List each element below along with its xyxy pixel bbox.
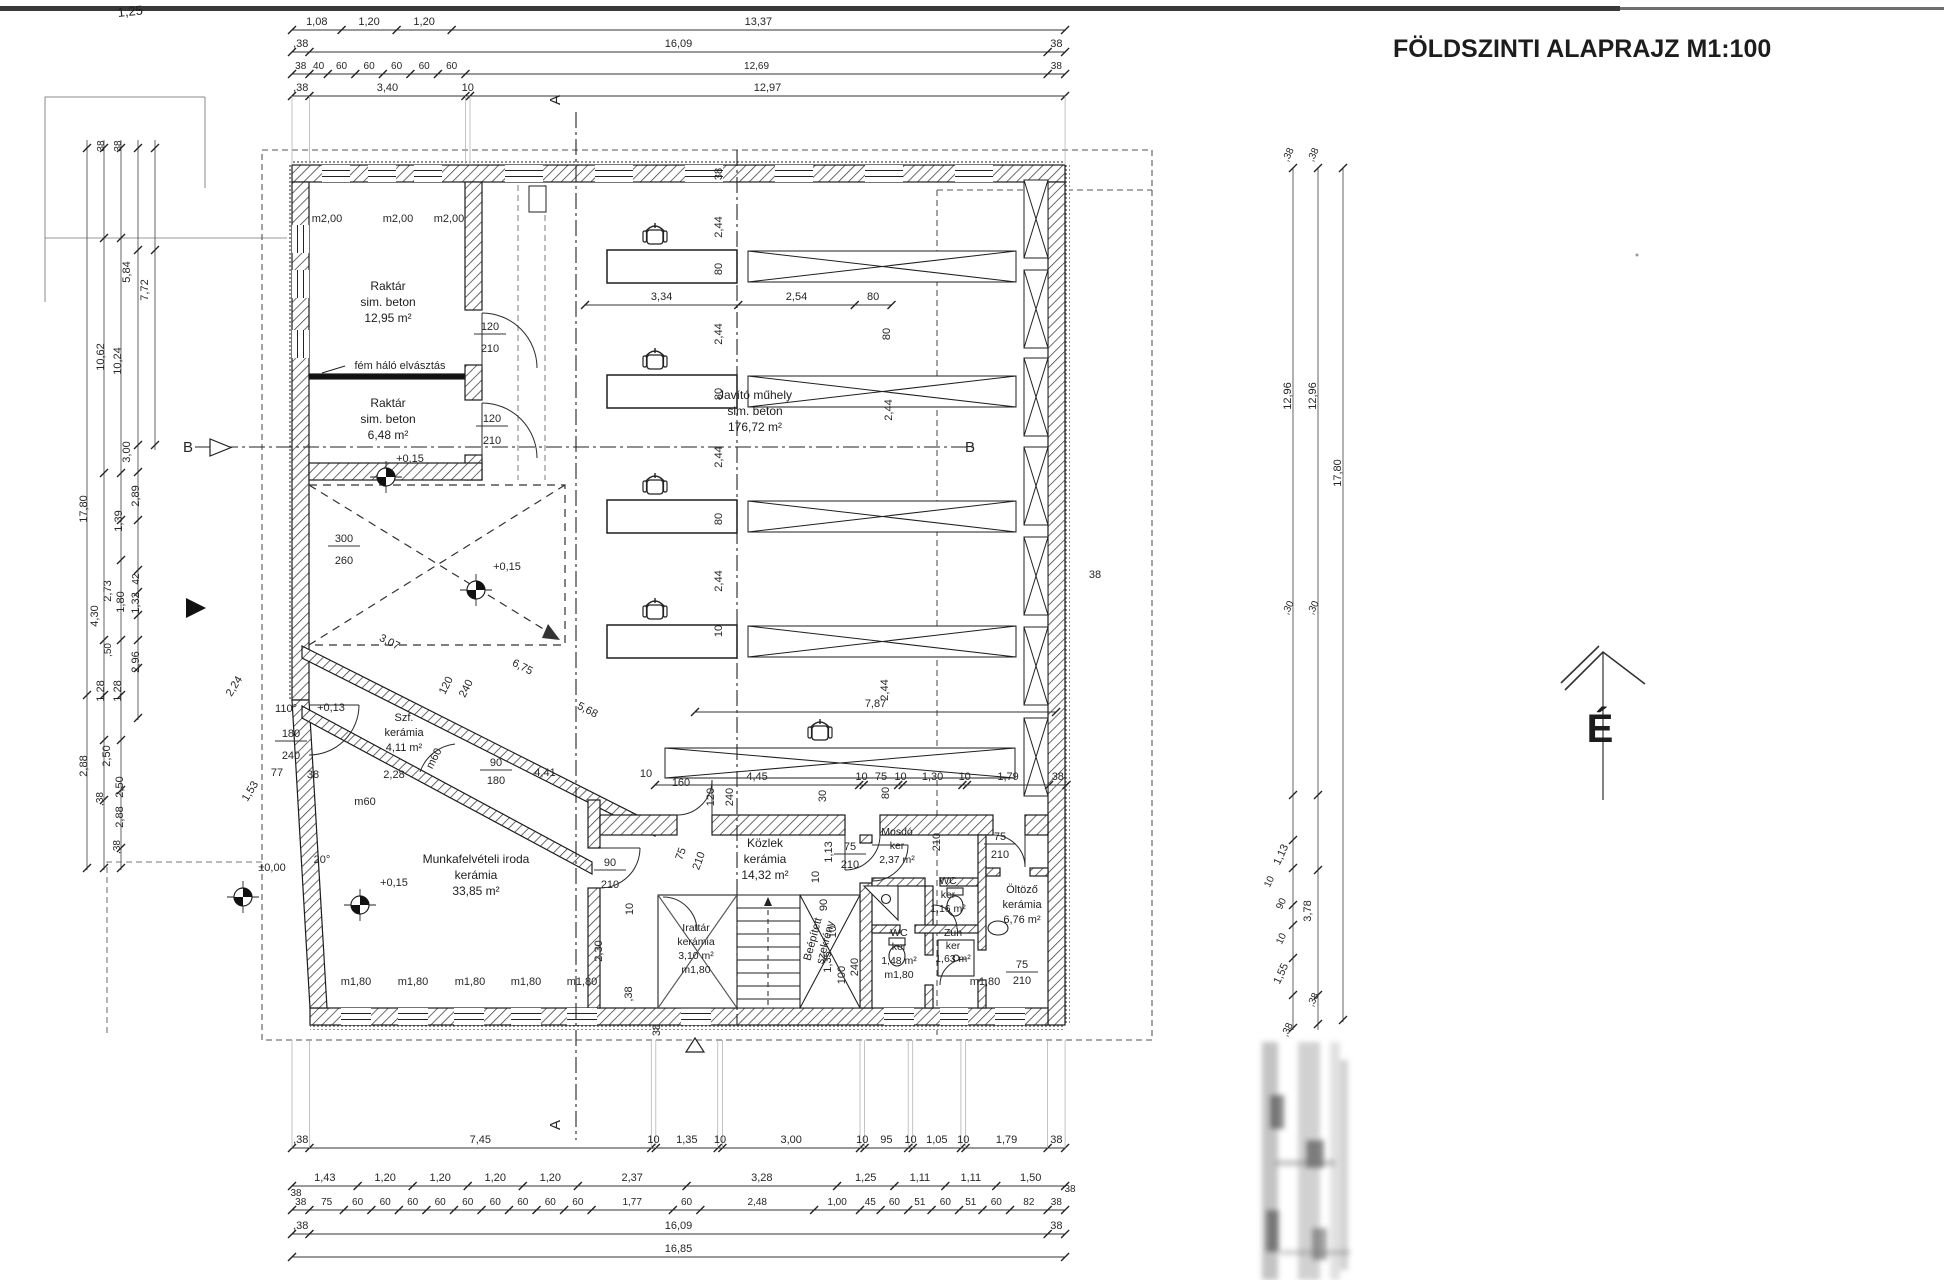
- annotation-label: ,38: [1306, 146, 1322, 164]
- room-label-line: WC: [939, 875, 957, 887]
- annotation-label: 2,44: [713, 323, 725, 344]
- annotation-label: 4,41: [534, 767, 555, 779]
- annotation-label: 1,28: [112, 680, 124, 701]
- dim-label: 1,08: [306, 16, 327, 28]
- annotation-label: ±0,00: [258, 862, 285, 874]
- annotation-label: ,38: [95, 792, 106, 806]
- dim-label: 1,77: [622, 1197, 642, 1208]
- annotation-label: 10: [624, 903, 636, 915]
- room-label-line: kerámia: [1002, 899, 1042, 911]
- annotation-label: 17,80: [78, 495, 90, 523]
- dim-label: 60: [545, 1197, 557, 1208]
- annotation-label: fém háló elvásztás: [354, 360, 446, 372]
- dim-label: 1,20: [540, 1172, 561, 1184]
- dim-label: ,38: [293, 38, 308, 50]
- roof-drain: [529, 186, 546, 212]
- annotation-label: B: [183, 439, 193, 456]
- dim-label: 1,20: [413, 16, 434, 28]
- annotation-label: 90: [604, 857, 616, 869]
- dim-label: 60: [391, 61, 403, 72]
- room-label-line: 1,63 m²: [935, 953, 971, 965]
- annotation-label: m2,00: [383, 213, 414, 225]
- dim-label: 1,25: [855, 1172, 876, 1184]
- dim-label: 1,11: [910, 1172, 931, 1184]
- annotation-label: 38: [96, 140, 107, 152]
- dim-label: 10: [894, 771, 906, 783]
- annotation-label: 1,55: [1271, 961, 1291, 985]
- annotation-label: +0,15: [380, 877, 408, 889]
- leader-line: [322, 366, 345, 373]
- annotation-label: 210: [1013, 975, 1031, 987]
- annotation-label: +0,15: [396, 453, 424, 465]
- dim-label: 10: [959, 771, 971, 783]
- dim-label: 16,85: [665, 1243, 693, 1255]
- dim-label: 60: [681, 1197, 693, 1208]
- dim-label: 38: [1052, 771, 1064, 783]
- room-label-line: Javító műhely: [718, 388, 792, 402]
- annotation-label: 3,07: [377, 632, 402, 652]
- dim-label: 38: [1051, 61, 1063, 72]
- annotation-label: 80: [713, 263, 725, 275]
- annotation-label: A: [547, 95, 564, 105]
- room-label-munkafelveteli-iroda: Munkafelvételi irodakerámia33,85 m²: [423, 852, 530, 898]
- dim-label: 60: [364, 61, 376, 72]
- annotation-label: ,38: [623, 986, 635, 1001]
- annotation-label: m2,00: [312, 213, 343, 225]
- annotation-label: 120: [437, 675, 456, 697]
- annotation-label: m1,80: [511, 976, 542, 988]
- annotation-label: 77: [271, 767, 283, 779]
- room-label-line: m1,80: [884, 969, 913, 981]
- dim-label: 3,34: [651, 291, 672, 303]
- dim-label: 60: [991, 1197, 1003, 1208]
- floor-plan-drawing: É FÖLDSZINTI ALAPRAJZ M1:100 1,25 1,081,…: [0, 0, 1944, 1280]
- annotation-label: 75: [1016, 959, 1028, 971]
- dim-label: ,38: [293, 82, 308, 94]
- dim-label: 10: [856, 1134, 868, 1146]
- room-label-line: Szf.: [395, 712, 414, 724]
- scan-top-edge: [0, 6, 1944, 11]
- handwritten-mark: 1,25: [117, 2, 144, 20]
- dim-label: 10: [647, 1134, 659, 1146]
- dim-label: 60: [380, 1197, 392, 1208]
- annotation-label: 7,72: [139, 279, 151, 300]
- annotation-label: 2,50: [101, 745, 113, 766]
- dim-label: 38: [1051, 1197, 1063, 1208]
- dim-label: 51: [914, 1197, 926, 1208]
- annotation-label: 1,13: [1271, 842, 1291, 866]
- annotation-label: 90: [818, 899, 830, 911]
- dim-label: 1,20: [485, 1172, 506, 1184]
- dim-label: 60: [490, 1197, 502, 1208]
- dim-label: 1,20: [358, 16, 379, 28]
- annotation-label: 90: [1274, 896, 1289, 911]
- annotation-label: ,30: [1306, 599, 1322, 617]
- room-label-line: m1,80: [681, 964, 710, 976]
- room-label-mosdo: Mosdóker2,37 m²: [879, 826, 915, 866]
- annotation-label: 260: [335, 555, 353, 567]
- room-label-line: 6,48 m²: [368, 428, 409, 442]
- room-label-line: ker: [946, 940, 961, 952]
- dim-label: 10: [855, 771, 867, 783]
- annotation-label: B: [965, 439, 975, 456]
- annotation-label: 110°: [275, 703, 297, 715]
- annotation-label: 1,39: [113, 510, 125, 531]
- annotation-label: 30: [817, 790, 829, 802]
- room-label-line: 3,10 m²: [678, 950, 714, 962]
- room-label-line: ker: [890, 840, 905, 852]
- room-label-kozlekedo: Közlekkerámia14,32 m²: [741, 836, 788, 882]
- annotation-label: 38: [651, 1024, 663, 1036]
- dim-label: 3,40: [377, 82, 398, 94]
- scan-smudge: [1262, 1042, 1350, 1280]
- annotation-label: 1,13: [823, 841, 835, 862]
- dim-label: 75: [875, 771, 887, 783]
- dim-label: 38: [1050, 1220, 1062, 1232]
- annotation-label: 10: [810, 871, 822, 883]
- annotation-label: 2,50: [114, 776, 126, 797]
- dim-label: 60: [462, 1197, 474, 1208]
- annotation-label: 100: [836, 966, 848, 984]
- room-label-oltozo: Öltözőkerámia6,76 m²: [1002, 884, 1042, 926]
- scanned-floorplan-page: É FÖLDSZINTI ALAPRAJZ M1:100 1,25 1,081,…: [0, 0, 1944, 1280]
- stairs: [737, 895, 800, 1008]
- entrance-arrow: [186, 598, 206, 618]
- annotation-label: 3,78: [1302, 900, 1314, 921]
- dim-label: 82: [1023, 1197, 1035, 1208]
- dim-label: 16,09: [665, 38, 693, 50]
- annotation-label: m1,80: [341, 976, 372, 988]
- dim-label: 3,28: [751, 1172, 772, 1184]
- annotation-label: 210: [690, 850, 708, 871]
- annotation-label: m1,80: [455, 976, 486, 988]
- annotation-label: ,38: [1281, 146, 1297, 164]
- dim-label: 80: [867, 291, 879, 303]
- dim-label: 3,00: [780, 1134, 801, 1146]
- dim-label: 1,20: [429, 1172, 450, 1184]
- room-label-line: kerámia: [455, 868, 498, 882]
- dim-label: 1,11: [960, 1172, 981, 1184]
- scan-speck: [1636, 254, 1639, 257]
- annotation-label: 210: [601, 879, 619, 891]
- annotation-label: ,30: [1281, 599, 1297, 617]
- page-leader-lines: [45, 97, 296, 302]
- dim-label: 2,37: [621, 1172, 642, 1184]
- dim-label: 51: [965, 1197, 977, 1208]
- room-label-line: 2,37 m²: [879, 854, 915, 866]
- dim-label: 38: [1050, 1134, 1062, 1146]
- room-label-line: Irattár: [682, 922, 710, 934]
- dim-label: 60: [419, 61, 431, 72]
- dim-label: 1,05: [926, 1134, 947, 1146]
- annotation-label: 38: [1089, 569, 1101, 581]
- annotation-label: 240: [724, 788, 736, 806]
- annotation-label: 1,28: [95, 680, 107, 701]
- dim-label: 45: [865, 1197, 877, 1208]
- annotation-label: 2,44: [879, 679, 891, 700]
- annotation-label: 210: [991, 849, 1009, 861]
- room-label-line: 176,72 m²: [728, 420, 782, 434]
- room-label-raktar-1: Raktársim. beton12,95 m²: [360, 279, 415, 325]
- workshop-benches: [607, 250, 1016, 778]
- room-label-line: Mosdó: [881, 826, 913, 838]
- annotation-label: m1,80: [970, 976, 1001, 988]
- annotation-label: 10: [1274, 931, 1289, 946]
- annotation-label: 3,00: [121, 441, 133, 462]
- dim-label: 60: [889, 1197, 901, 1208]
- dim-label: 38: [295, 61, 307, 72]
- annotation-label: 17,80: [1332, 459, 1344, 487]
- annotation-label: 38: [713, 168, 725, 180]
- annotation-label: 2,24: [224, 674, 246, 699]
- annotation-label: 4,30: [89, 605, 101, 626]
- annotation-label: m60: [424, 746, 444, 771]
- annotation-label: 210: [841, 859, 859, 871]
- annotation-label: 180: [282, 728, 300, 740]
- annotation-label: 2,89: [130, 485, 142, 506]
- annotation-label: 2,44: [713, 216, 725, 237]
- dim-label: 1,30: [922, 771, 943, 783]
- annotation-label: m60: [354, 796, 375, 808]
- room-label-line: Öltöző: [1006, 884, 1038, 896]
- annotation-label: 180: [487, 775, 505, 787]
- room-label-line: 12,95 m²: [364, 311, 411, 325]
- room-label-line: Raktár: [370, 396, 405, 410]
- dim-label: 60: [352, 1197, 364, 1208]
- annotation-label: 10: [1262, 874, 1277, 889]
- annotation-label: 120: [705, 788, 717, 806]
- annotation-label: 75: [844, 841, 856, 853]
- room-label-line: Közlek: [747, 836, 784, 850]
- dim-label: 1,79: [997, 771, 1018, 783]
- dim-label: 60: [446, 61, 458, 72]
- room-label-line: sim. beton: [360, 412, 415, 426]
- annotation-label: 120: [483, 413, 501, 425]
- annotation-label: 10,24: [112, 347, 124, 375]
- room-label-line: Zuh: [944, 927, 962, 939]
- annotation-label: 160: [672, 777, 690, 789]
- annotation-label: 12,96: [1307, 382, 1319, 410]
- room-label-line: 14,32 m²: [741, 868, 788, 882]
- annotation-label: 210: [481, 343, 499, 355]
- annotation-label: 1,32: [130, 592, 142, 613]
- annotation-label: 240: [282, 750, 300, 762]
- annotation-label: m1,80: [567, 976, 598, 988]
- dim-label: 75: [321, 1197, 333, 1208]
- room-label-line: ker: [941, 889, 956, 901]
- annotation-label: m1,80: [398, 976, 429, 988]
- annotation-label: 1,53: [240, 779, 262, 804]
- metal-mesh-partition: [309, 374, 465, 379]
- room-label-line: kerámia: [384, 727, 424, 739]
- room-label-line: 1,48 m²: [881, 955, 917, 967]
- dim-label: 10: [462, 82, 474, 94]
- annotation-label: 6,75: [510, 657, 535, 677]
- annotation-label: 75: [673, 846, 688, 862]
- annotation-label: 75: [994, 831, 1006, 843]
- annotation-label: 300: [335, 533, 353, 545]
- room-label-line: sim. beton: [727, 404, 782, 418]
- dim-label: 2,48: [747, 1197, 767, 1208]
- annotation-label: +0,15: [493, 561, 521, 573]
- annotation-label: 20°: [314, 854, 331, 866]
- annotation-label: 2,88: [78, 755, 90, 776]
- annotation-label: 38: [113, 140, 124, 152]
- annotation-label: 38: [290, 1188, 302, 1199]
- annotation-label: 1,80: [115, 591, 127, 612]
- dim-label: 1,43: [314, 1172, 335, 1184]
- dim-label: ,38: [293, 1134, 308, 1146]
- dim-label: 60: [336, 61, 348, 72]
- annotation-label: 210: [483, 435, 501, 447]
- annotation-label: 10: [713, 625, 725, 637]
- room-label-line: kerámia: [744, 852, 787, 866]
- annotation-label: 38: [1064, 1184, 1076, 1195]
- room-label-line: WC: [890, 927, 908, 939]
- annotation-label: 2,28: [383, 769, 404, 781]
- annotation-label: 38: [307, 769, 319, 781]
- room-label-line: Raktár: [370, 279, 405, 293]
- dim-label: 1,00: [827, 1197, 847, 1208]
- section-marker-b: [210, 439, 231, 456]
- dim-label: 60: [572, 1197, 584, 1208]
- annotation-label: 2,73: [102, 580, 114, 601]
- annotation-label: 5,68: [575, 700, 600, 720]
- annotation-label: 42: [131, 573, 142, 585]
- annotation-label: 80: [880, 787, 892, 799]
- room-label-line: 1,16 m²: [930, 903, 966, 915]
- annotation-label: 10,62: [95, 343, 107, 371]
- room-label-javito-muhely: Javító műhelysim. beton176,72 m²: [718, 388, 792, 434]
- annotation-label: 10: [640, 768, 652, 780]
- dim-label: 1,50: [1020, 1172, 1041, 1184]
- dim-label: 10: [957, 1134, 969, 1146]
- room-label-line: sim. beton: [360, 295, 415, 309]
- annotation-label: m2,00: [434, 213, 465, 225]
- dim-label: 1,20: [374, 1172, 395, 1184]
- room-label-line: kerámia: [677, 936, 715, 948]
- annotation-label: 2,44: [713, 446, 725, 467]
- annotation-label: 80: [713, 513, 725, 525]
- dim-label: 38: [1050, 38, 1062, 50]
- annotation-label: +0,13: [317, 702, 345, 714]
- dim-label: 13,37: [745, 16, 773, 28]
- annotation-label: 12,96: [1282, 382, 1294, 410]
- annotation-label: 2,88: [114, 806, 126, 827]
- dim-label: 1,79: [996, 1134, 1017, 1146]
- dim-label: 10: [904, 1134, 916, 1146]
- dim-label: ,38: [293, 1220, 308, 1232]
- annotation-label: 2,30: [593, 940, 605, 961]
- dim-label: 60: [435, 1197, 447, 1208]
- right-wall-panels: [1024, 180, 1048, 796]
- dim-label: 2,54: [786, 291, 807, 303]
- annotation-label: 210: [931, 833, 943, 851]
- dim-label: 60: [407, 1197, 419, 1208]
- dim-label: 1,35: [676, 1134, 697, 1146]
- annotation-label: 240: [849, 958, 861, 976]
- room-label-line: 33,85 m²: [452, 884, 499, 898]
- dim-label: 4,45: [746, 771, 767, 783]
- room-label-szelfogo: Szf.kerámia4,11 m²: [384, 712, 424, 754]
- annotation-label: 90: [490, 757, 502, 769]
- room-label-raktar-2: Raktársim. beton6,48 m²: [360, 396, 415, 442]
- annotation-label: 5,84: [121, 261, 133, 282]
- annotation-label: 2,44: [713, 570, 725, 591]
- drawing-title: FÖLDSZINTI ALAPRAJZ M1:100: [1393, 34, 1771, 63]
- annotation-label: ,38: [112, 840, 123, 854]
- annotation-label: 2,96: [130, 651, 142, 672]
- dim-label: 12,69: [744, 61, 769, 72]
- dim-label: 10: [714, 1134, 726, 1146]
- annotation-label: A: [547, 1120, 564, 1130]
- annotation-label: 240: [457, 678, 476, 700]
- dim-label: 16,09: [665, 1220, 693, 1232]
- north-label: É: [1587, 706, 1614, 751]
- dim-label: 60: [940, 1197, 952, 1208]
- room-label-line: 4,11 m²: [386, 742, 423, 754]
- room-label-line: 6,76 m²: [1003, 914, 1041, 926]
- dim-label: 95: [880, 1134, 892, 1146]
- dim-label: 7,45: [470, 1134, 491, 1146]
- room-label-line: Munkafelvételi iroda: [423, 852, 530, 866]
- dim-label: 12,97: [754, 82, 782, 94]
- room-label-line: ker: [892, 941, 907, 953]
- dim-label: 60: [517, 1197, 529, 1208]
- annotation-label: 120: [481, 321, 499, 333]
- dim-label: 40: [313, 61, 325, 72]
- annotation-label: ,50: [103, 643, 114, 657]
- annotation-label: 2,44: [883, 399, 895, 420]
- annotation-label: 80: [881, 328, 893, 340]
